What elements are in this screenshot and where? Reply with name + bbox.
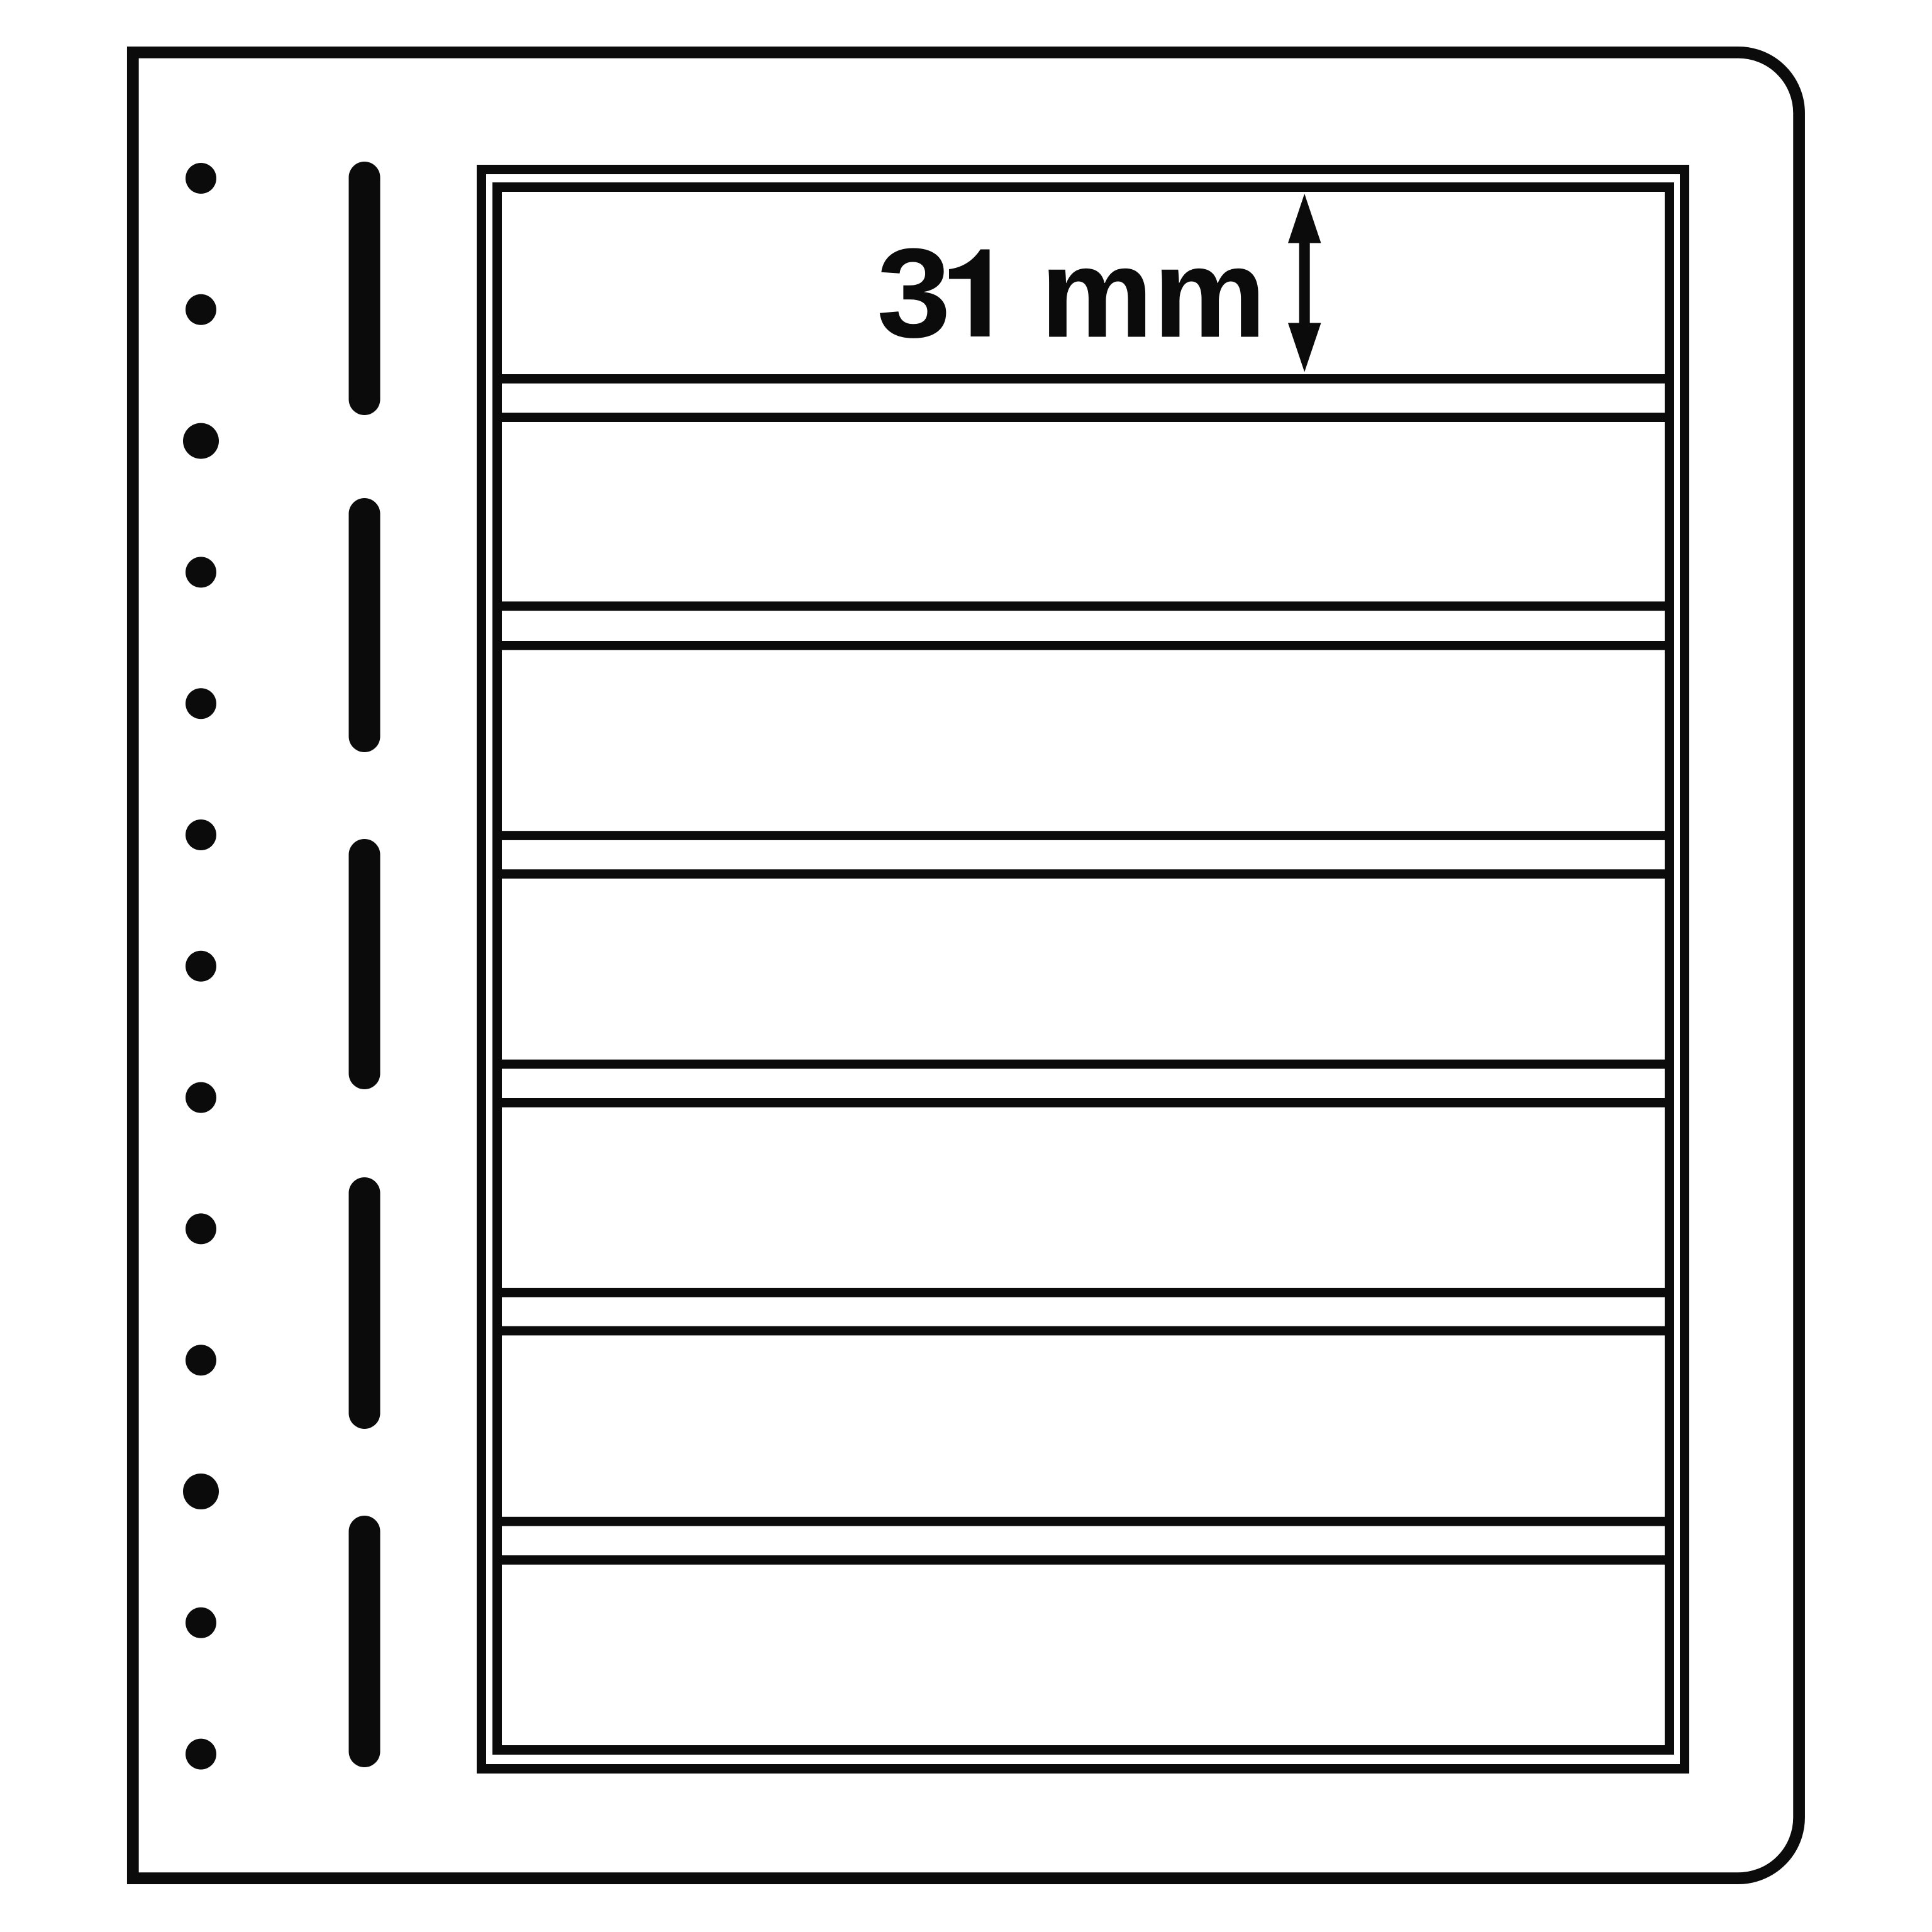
svg-text:mm: mm xyxy=(1040,222,1266,364)
svg-text:3: 3 xyxy=(877,222,951,364)
